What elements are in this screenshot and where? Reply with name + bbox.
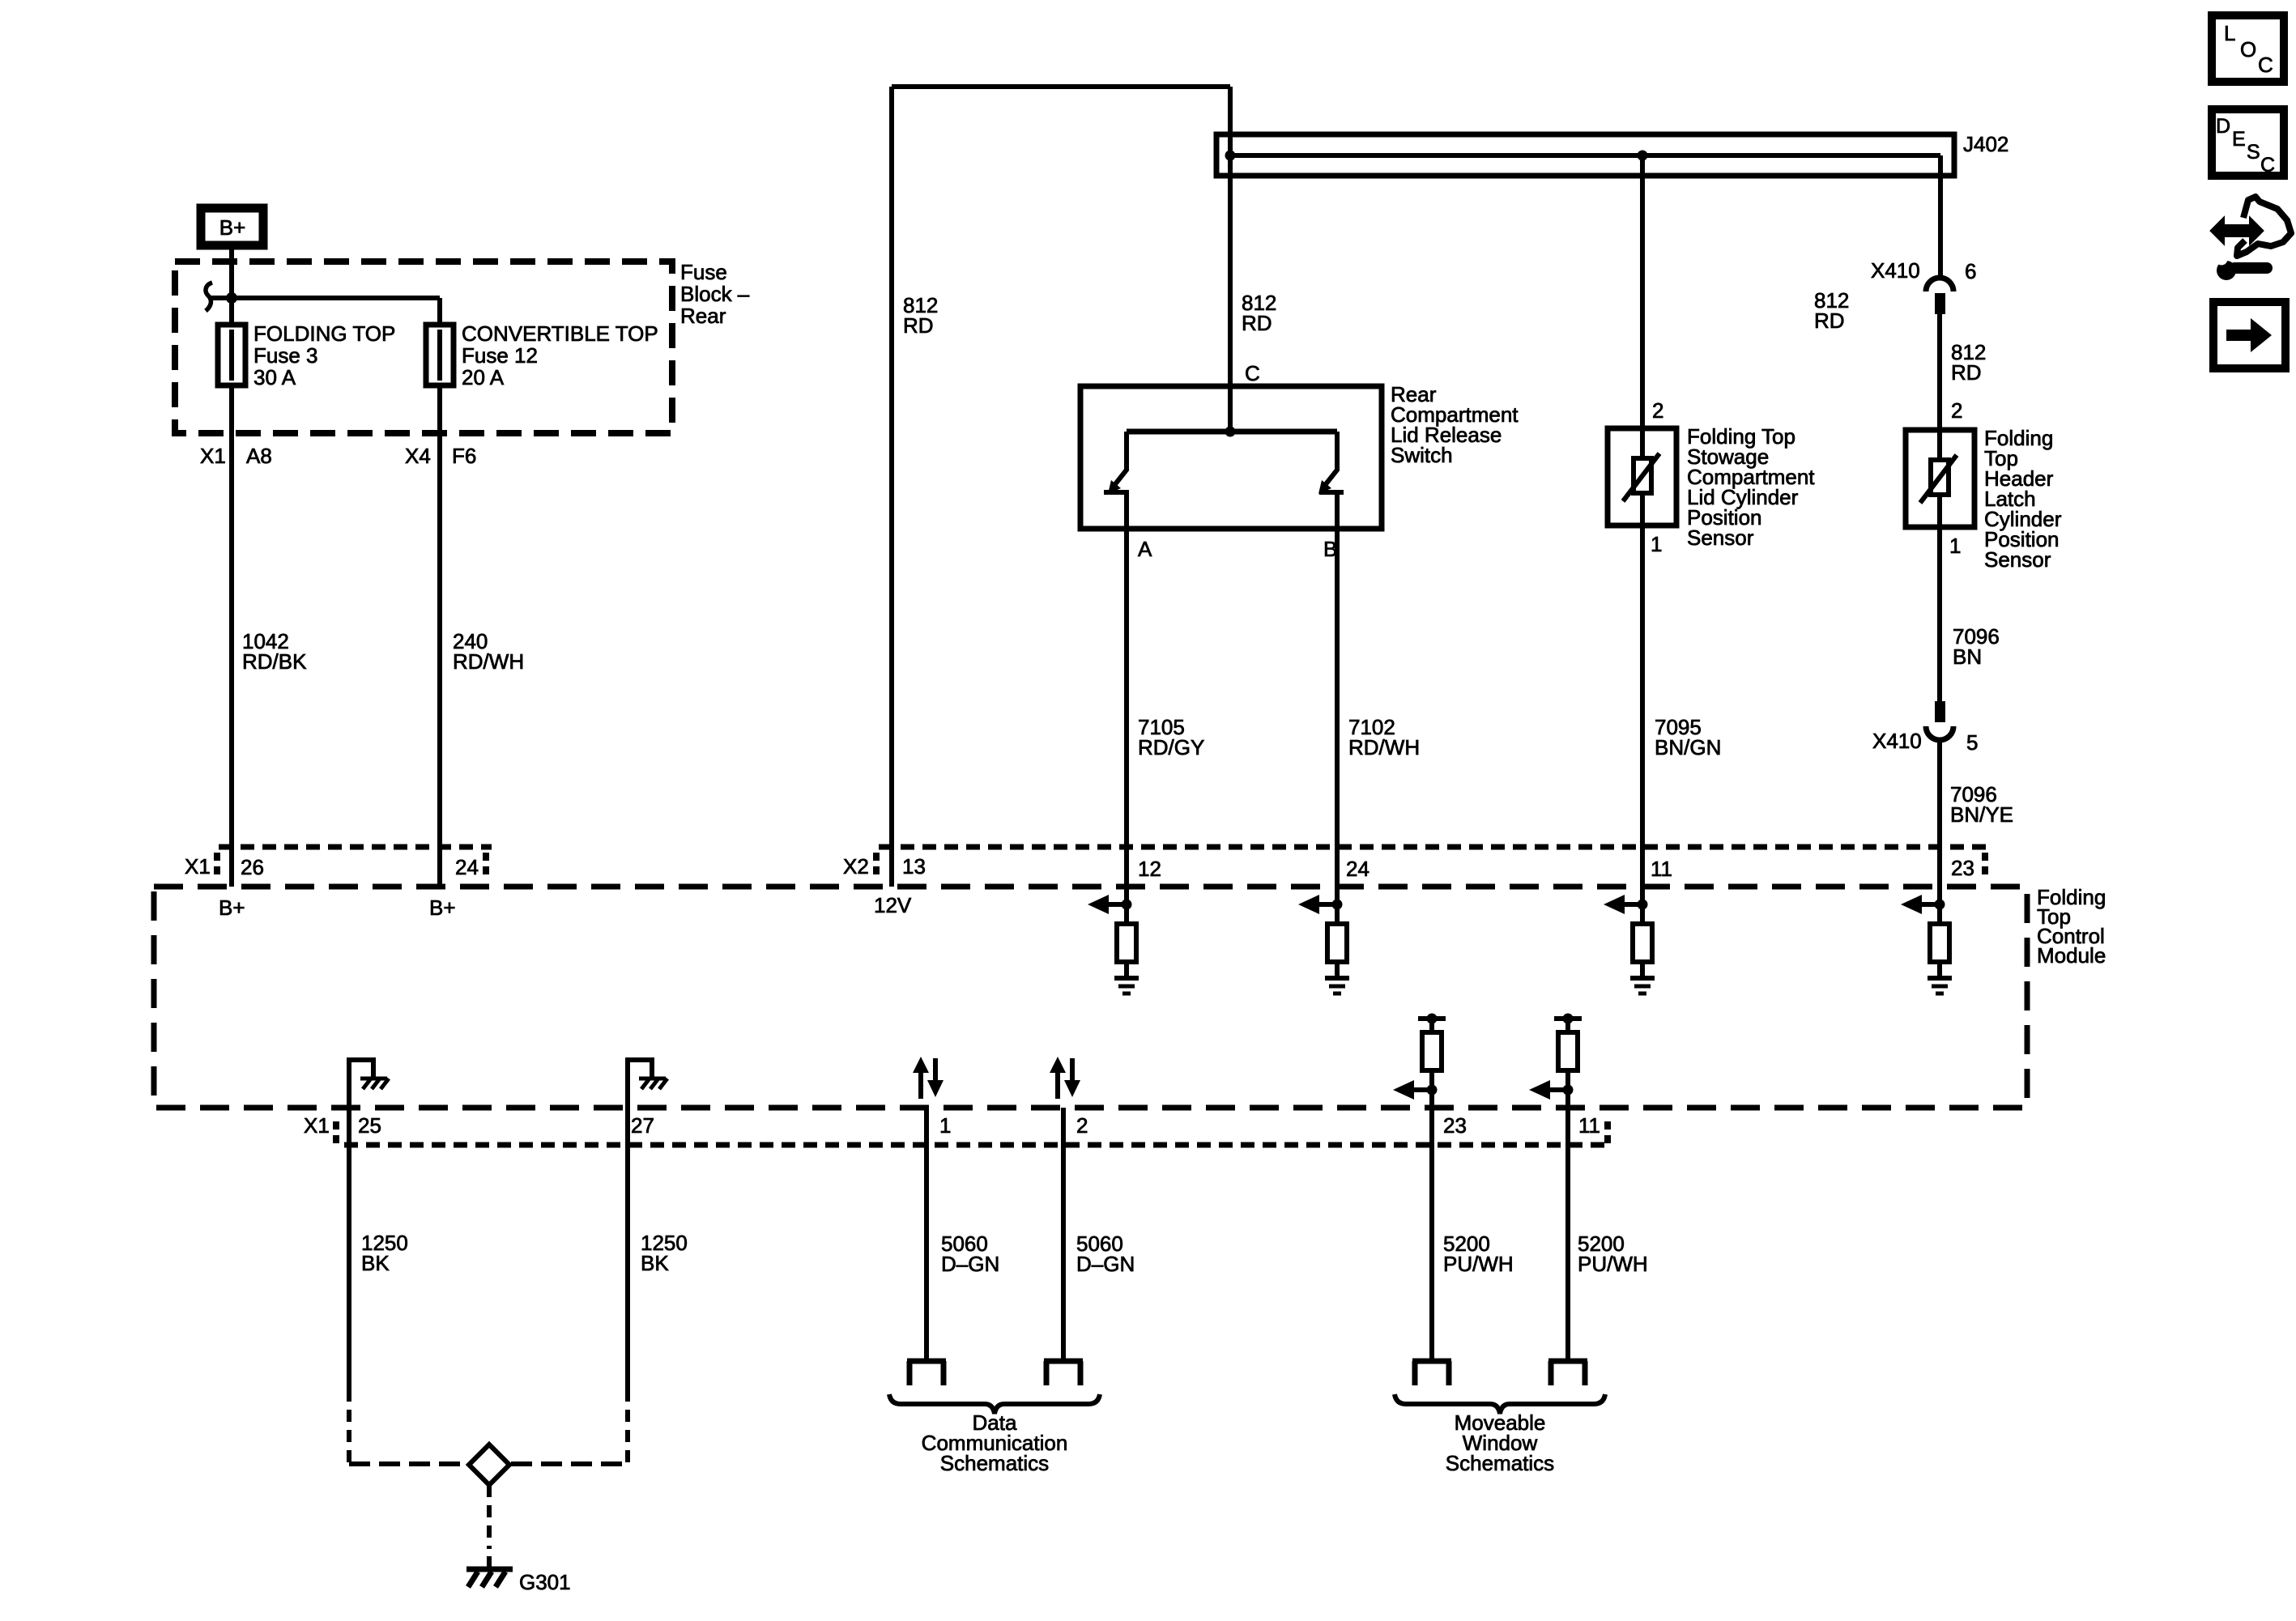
svg-text:20 A: 20 A	[462, 365, 505, 389]
svg-text:2: 2	[1076, 1113, 1088, 1138]
svg-text:X1: X1	[200, 444, 226, 468]
svg-text:2: 2	[1652, 398, 1663, 423]
svg-text:RD/GY: RD/GY	[1138, 735, 1204, 759]
svg-text:Fuse: Fuse	[680, 260, 727, 284]
svg-text:23: 23	[1443, 1113, 1467, 1138]
svg-text:X410: X410	[1872, 729, 1922, 753]
svg-text:Schematics: Schematics	[1446, 1451, 1554, 1475]
svg-text:Sensor: Sensor	[1984, 547, 2051, 572]
svg-text:Fuse 3: Fuse 3	[253, 343, 318, 368]
svg-text:1: 1	[1949, 534, 1961, 558]
svg-text:12: 12	[1138, 857, 1161, 881]
svg-text:PU/WH: PU/WH	[1443, 1252, 1514, 1276]
svg-text:24: 24	[455, 855, 479, 879]
svg-text:S: S	[2247, 141, 2260, 164]
svg-text:Block –: Block –	[680, 282, 750, 306]
svg-text:Module: Module	[2037, 943, 2106, 968]
svg-text:RD/WH: RD/WH	[1348, 735, 1420, 759]
svg-text:11: 11	[1651, 857, 1672, 881]
svg-text:BK: BK	[361, 1251, 390, 1275]
svg-text:Fuse 12: Fuse 12	[462, 343, 538, 368]
svg-text:BN: BN	[1953, 645, 1982, 669]
svg-text:C: C	[2260, 154, 2275, 177]
svg-text:C: C	[1245, 361, 1260, 385]
svg-text:BN/YE: BN/YE	[1950, 802, 2013, 827]
svg-text:B+: B+	[429, 896, 456, 920]
svg-text:25: 25	[358, 1113, 381, 1138]
svg-text:1: 1	[1651, 532, 1662, 556]
svg-text:X2: X2	[843, 854, 869, 879]
svg-text:J402: J402	[1963, 132, 2008, 156]
svg-text:X410: X410	[1871, 258, 1920, 283]
svg-text:RD: RD	[1951, 360, 1982, 385]
svg-text:2: 2	[1951, 398, 1962, 423]
svg-text:RD/WH: RD/WH	[453, 649, 524, 674]
svg-text:6: 6	[1965, 259, 1976, 283]
svg-text:B+: B+	[219, 215, 246, 240]
svg-text:BK: BK	[641, 1251, 669, 1275]
svg-text:F6: F6	[452, 444, 476, 468]
svg-text:23: 23	[1951, 856, 1974, 880]
svg-text:A: A	[1138, 537, 1152, 561]
svg-text:13: 13	[902, 854, 926, 879]
svg-text:27: 27	[631, 1113, 654, 1138]
svg-text:11: 11	[1578, 1113, 1600, 1138]
svg-text:30 A: 30 A	[253, 365, 296, 389]
svg-text:RD/BK: RD/BK	[242, 649, 307, 674]
svg-text:D–GN: D–GN	[941, 1252, 999, 1276]
svg-text:RD: RD	[1814, 308, 1845, 333]
svg-text:24: 24	[1346, 857, 1370, 881]
svg-text:1: 1	[939, 1113, 951, 1138]
svg-text:RD: RD	[903, 313, 934, 338]
svg-text:D: D	[2216, 115, 2230, 138]
svg-text:Sensor: Sensor	[1687, 525, 1754, 550]
svg-text:A8: A8	[246, 444, 272, 468]
svg-text:D–GN: D–GN	[1076, 1252, 1135, 1276]
svg-text:5: 5	[1966, 730, 1978, 755]
svg-text:RD: RD	[1242, 311, 1272, 335]
svg-text:FOLDING TOP: FOLDING TOP	[253, 321, 395, 346]
svg-text:X4: X4	[405, 444, 431, 468]
svg-text:CONVERTIBLE TOP: CONVERTIBLE TOP	[462, 321, 658, 346]
svg-text:Rear: Rear	[680, 304, 726, 328]
svg-text:12V: 12V	[874, 893, 912, 917]
svg-text:X1: X1	[185, 854, 211, 879]
svg-text:L: L	[2224, 21, 2235, 45]
svg-text:X1: X1	[304, 1113, 330, 1138]
svg-text:E: E	[2232, 128, 2246, 151]
svg-text:B+: B+	[219, 896, 245, 920]
svg-text:Switch: Switch	[1391, 443, 1453, 467]
svg-text:26: 26	[241, 855, 264, 879]
svg-text:BN/GN: BN/GN	[1655, 735, 1721, 759]
svg-text:PU/WH: PU/WH	[1578, 1252, 1648, 1276]
svg-text:O: O	[2240, 37, 2256, 62]
svg-text:Schematics: Schematics	[940, 1451, 1049, 1475]
svg-text:C: C	[2258, 53, 2273, 77]
svg-text:G301: G301	[519, 1570, 571, 1594]
